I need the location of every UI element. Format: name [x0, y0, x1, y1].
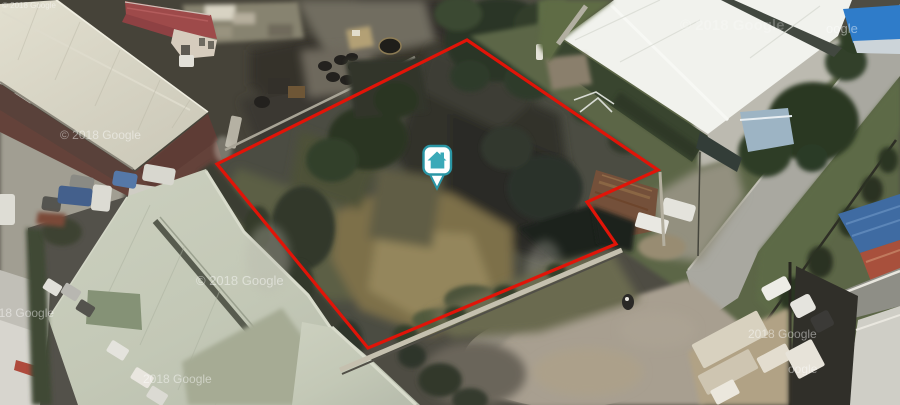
- svg-text:2018 Google: 2018 Google: [748, 327, 817, 341]
- svg-text:2018 Google: 2018 Google: [143, 372, 212, 386]
- svg-text:oogle: oogle: [788, 362, 818, 376]
- svg-text:© 2018 Google: © 2018 Google: [60, 128, 141, 142]
- svg-text:© 2018 Google: © 2018 Google: [680, 17, 784, 34]
- svg-text:© 2018 Google: © 2018 Google: [2, 1, 56, 10]
- svg-text:018 Google: 018 Google: [0, 306, 54, 320]
- svg-text:© 2018 Google: © 2018 Google: [196, 273, 284, 288]
- svg-text:oogle: oogle: [826, 21, 858, 36]
